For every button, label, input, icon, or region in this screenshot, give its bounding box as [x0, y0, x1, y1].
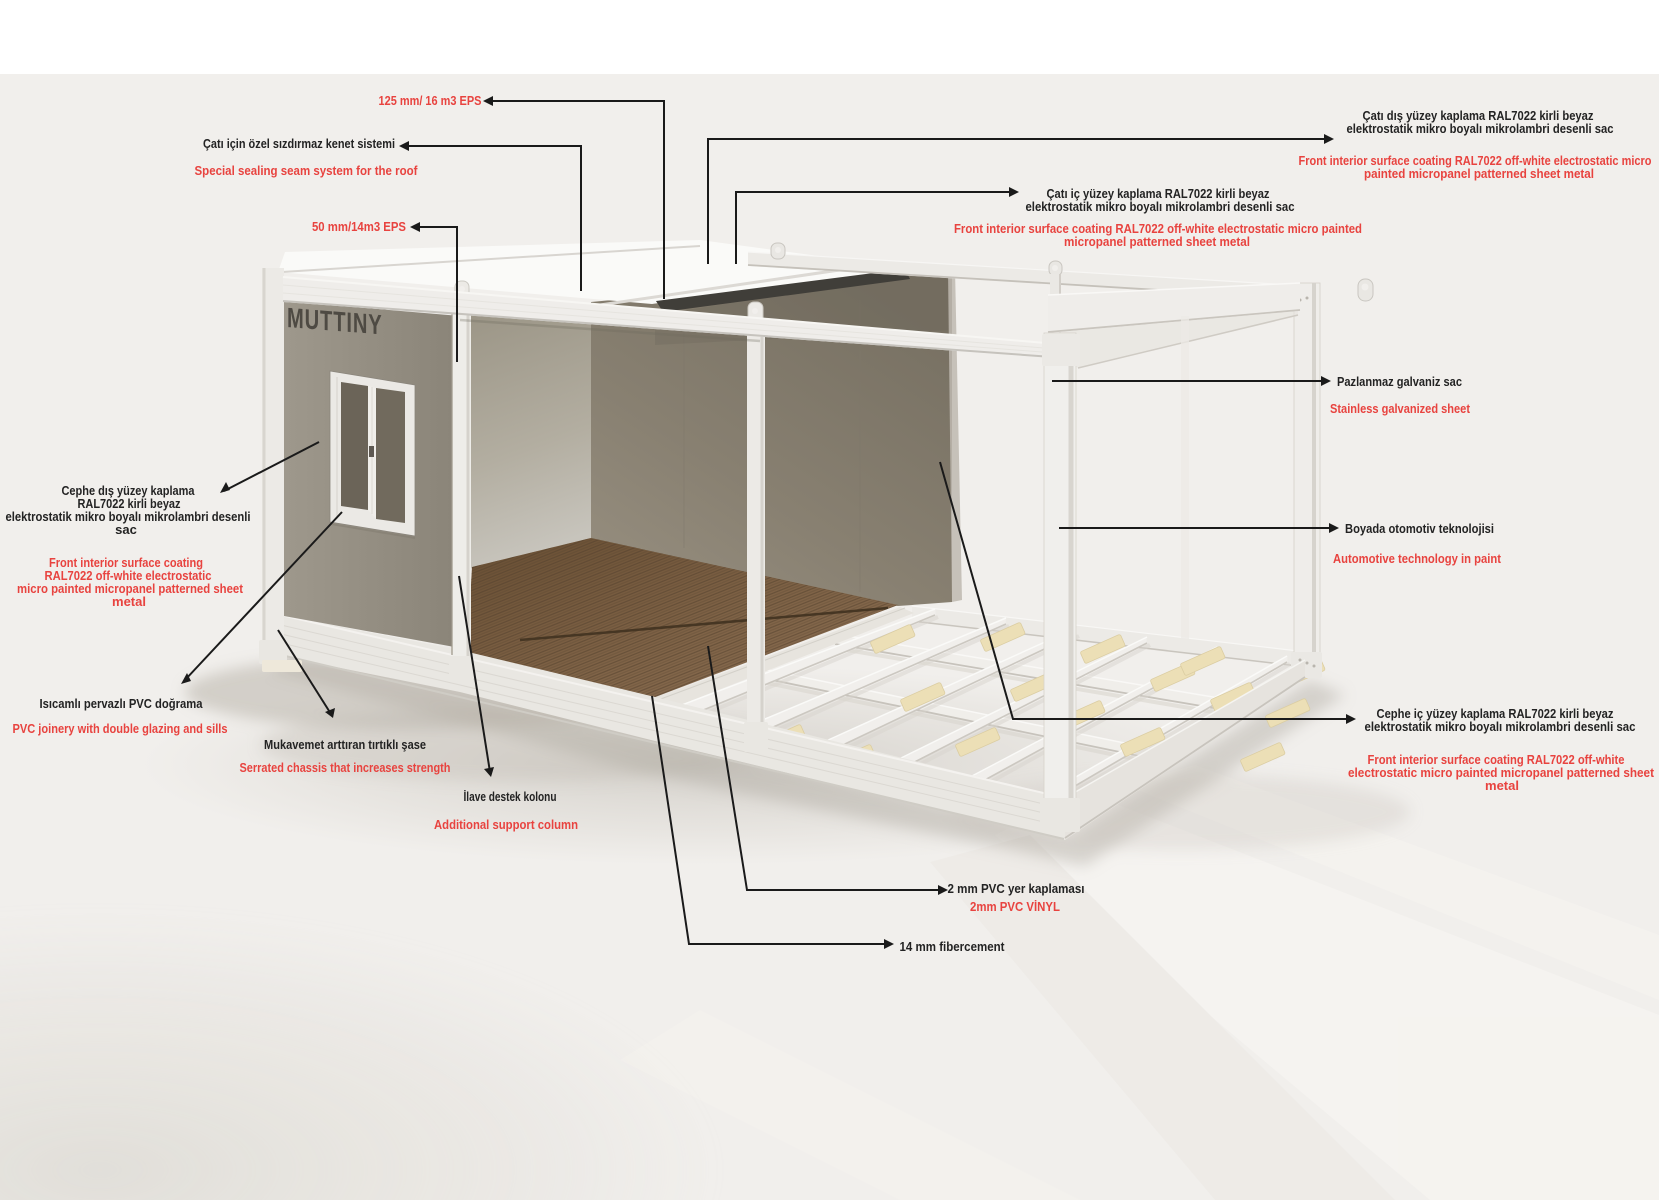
svg-text:micropanel patterned sheet met: micropanel patterned sheet metal	[1064, 234, 1250, 249]
svg-text:Çatı için özel sızdırmaz kenet: Çatı için özel sızdırmaz kenet sistemi	[203, 136, 395, 151]
svg-text:elektrostatik mikro boyalı mik: elektrostatik mikro boyalı mikrolambri d…	[1347, 121, 1614, 136]
svg-text:14 mm fibercement: 14 mm fibercement	[900, 939, 1006, 954]
svg-text:Serrated chassis that increase: Serrated chassis that increases strength	[240, 760, 451, 775]
svg-text:Isıcamlı pervazlı PVC doğrama: Isıcamlı pervazlı PVC doğrama	[40, 696, 204, 711]
svg-text:elektrostatik mikro boyalı mik: elektrostatik mikro boyalı mikrolambri d…	[1026, 199, 1295, 214]
svg-text:Stainless galvanized sheet: Stainless galvanized sheet	[1330, 401, 1471, 416]
svg-text:metal: metal	[1485, 778, 1519, 793]
svg-text:2mm PVC VİNYL: 2mm PVC VİNYL	[970, 899, 1060, 914]
svg-text:2 mm PVC yer kaplaması: 2 mm PVC yer kaplaması	[948, 881, 1085, 896]
svg-text:PVC joinery with double glazin: PVC joinery with double glazing and sill…	[13, 721, 228, 736]
svg-text:50 mm/14m3 EPS: 50 mm/14m3 EPS	[312, 219, 406, 234]
svg-text:Boyada otomotiv teknolojisi: Boyada otomotiv teknolojisi	[1345, 521, 1494, 536]
svg-text:125 mm/ 16 m3 EPS: 125 mm/ 16 m3 EPS	[379, 93, 482, 108]
svg-text:elektrostatik mikro boyalı mik: elektrostatik mikro boyalı mikrolambri d…	[1365, 719, 1636, 734]
svg-text:sac: sac	[115, 522, 137, 537]
svg-text:İlave destek kolonu: İlave destek kolonu	[464, 789, 557, 804]
svg-text:Pazlanmaz galvaniz sac: Pazlanmaz galvaniz sac	[1337, 374, 1462, 389]
svg-text:Additional support column: Additional support column	[434, 817, 578, 832]
svg-text:metal: metal	[112, 594, 146, 609]
svg-text:Special sealing seam system fo: Special sealing seam system for the roof	[195, 163, 419, 178]
svg-text:painted micropanel patterned s: painted micropanel patterned sheet metal	[1364, 166, 1594, 181]
svg-text:Automotive technology in paint: Automotive technology in paint	[1333, 551, 1502, 566]
svg-text:Mukavemet arttıran tırtıklı şa: Mukavemet arttıran tırtıklı şase	[264, 737, 426, 752]
